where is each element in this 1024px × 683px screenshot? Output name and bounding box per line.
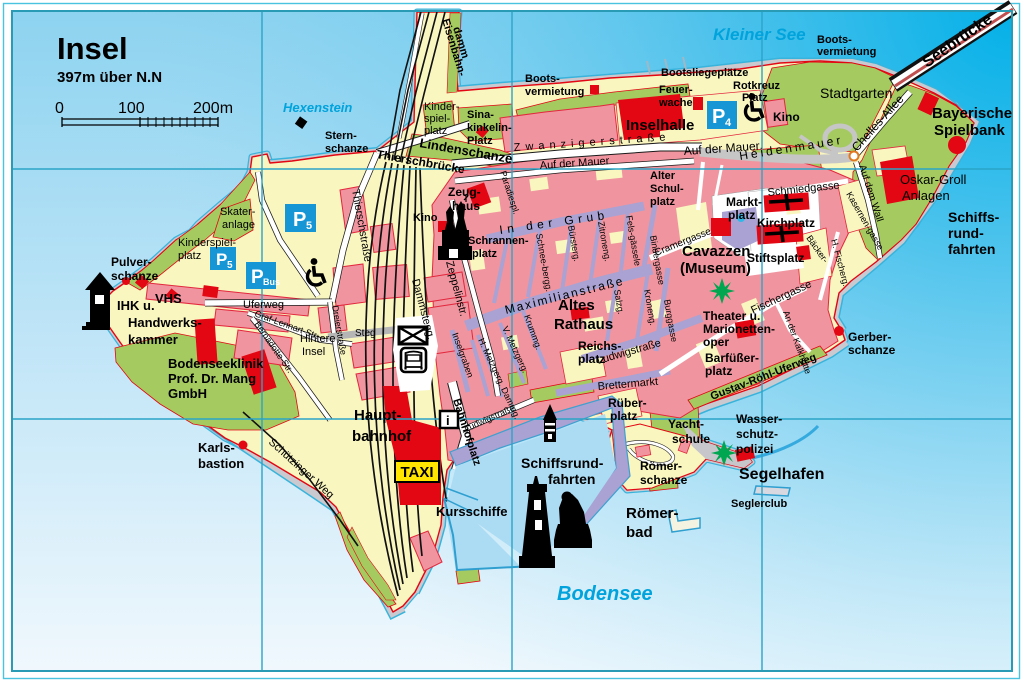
svg-text:Segelhafen: Segelhafen (739, 466, 824, 483)
svg-text:Hexenstein: Hexenstein (283, 100, 352, 115)
svg-text:Bootsliegeplätze: Bootsliegeplätze (661, 67, 748, 79)
svg-text:Zeug-haus: Zeug-haus (448, 185, 481, 213)
svg-text:Yacht-schule: Yacht-schule (668, 417, 710, 446)
svg-text:Kleiner See: Kleiner See (713, 25, 806, 44)
svg-text:P: P (293, 209, 306, 231)
svg-text:i: i (446, 413, 450, 428)
svg-text:5: 5 (306, 220, 312, 232)
svg-text:4: 4 (725, 117, 732, 129)
svg-text:Römer-schanze: Römer-schanze (640, 459, 688, 487)
svg-text:Kirchplatz: Kirchplatz (757, 216, 815, 230)
svg-text:100: 100 (118, 100, 145, 117)
svg-text:BayerischeSpielbank: BayerischeSpielbank (932, 105, 1012, 139)
svg-text:Gerber-schanze: Gerber-schanze (848, 330, 896, 357)
svg-text:Kursschiffe: Kursschiffe (436, 504, 508, 519)
svg-text:Feuer-wache: Feuer-wache (658, 84, 693, 109)
svg-text:TAXI: TAXI (400, 464, 433, 481)
svg-text:0: 0 (55, 100, 64, 117)
svg-text:397m über N.N: 397m über N.N (57, 69, 162, 86)
svg-text:Stadtgarten: Stadtgarten (820, 85, 892, 101)
svg-text:Bodensee: Bodensee (557, 583, 653, 605)
svg-text:Skater-anlage: Skater-anlage (220, 206, 256, 231)
svg-text:5: 5 (227, 260, 233, 271)
svg-text:Kino: Kino (773, 110, 800, 124)
svg-text:Steg: Steg (355, 328, 376, 339)
svg-text:Bus: Bus (263, 277, 280, 287)
svg-text:P: P (712, 106, 725, 128)
svg-text:Pulver-schanze: Pulver-schanze (111, 255, 159, 283)
svg-text:Kino: Kino (413, 212, 438, 224)
svg-text:Uferweg: Uferweg (243, 299, 284, 311)
svg-text:Insel: Insel (57, 31, 128, 66)
svg-text:Stiftsplatz: Stiftsplatz (747, 251, 804, 265)
svg-text:VHS: VHS (155, 291, 182, 306)
svg-text:P: P (216, 250, 227, 269)
svg-text:Cavazzen(Museum): Cavazzen(Museum) (680, 243, 751, 277)
svg-text:Seglerclub: Seglerclub (731, 498, 788, 510)
svg-text:200m: 200m (193, 100, 233, 117)
